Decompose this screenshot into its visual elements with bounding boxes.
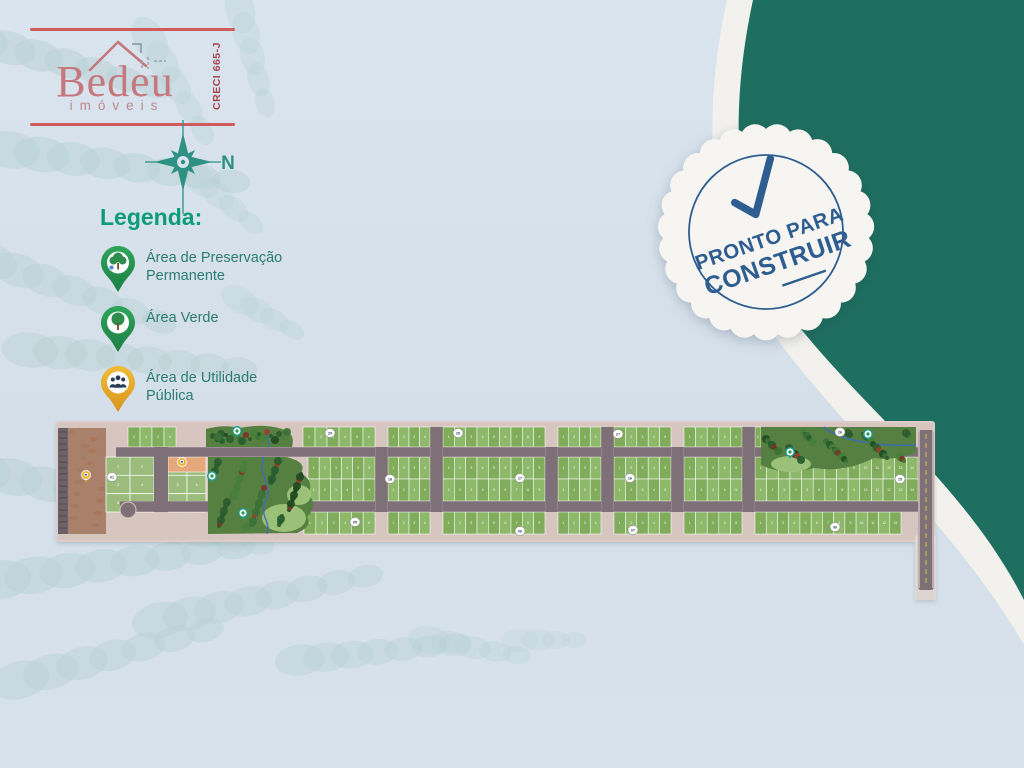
legend-label-line: Área Verde — [146, 309, 219, 327]
lot-number: 1 — [392, 521, 394, 525]
lot-number: 1 — [619, 466, 621, 470]
lot-number: 4 — [724, 488, 726, 492]
lot-number: 1 — [313, 466, 315, 470]
quadra-number: 17 — [518, 476, 522, 480]
tree — [248, 437, 252, 441]
lot-number: 2 — [630, 488, 632, 492]
lot-number: 2 — [324, 466, 326, 470]
lot-number: 2 — [573, 466, 575, 470]
lot-number: 5 — [664, 488, 666, 492]
lot-number: 9 — [538, 521, 540, 525]
lot-number: 5 — [356, 435, 358, 439]
lot-number: 3 — [470, 488, 472, 492]
lot-number: 7 — [830, 488, 832, 492]
lot-number: 3 — [783, 488, 785, 492]
chimney-line — [132, 44, 141, 53]
tree — [809, 438, 817, 446]
lot-number: 1 — [309, 521, 311, 525]
lot-number: 1 — [448, 521, 450, 525]
pin-people-dot — [181, 461, 183, 463]
quadra-number: 27 — [616, 432, 620, 436]
pin-tree-dot — [235, 429, 238, 432]
lot-number: 4 — [424, 488, 426, 492]
lot-number: 3 — [413, 435, 415, 439]
lot-number: 6 — [818, 488, 820, 492]
lot-number: 1 — [689, 466, 691, 470]
field-texture — [68, 430, 74, 434]
lot-number: 4 — [141, 483, 143, 487]
pin-tree-dot — [788, 450, 791, 453]
compass-north-label: N — [221, 153, 235, 174]
pin-tree-dot — [241, 511, 244, 514]
lot-number: 1 — [448, 488, 450, 492]
lot-number: 10 — [864, 466, 868, 470]
lot-number: 2 — [573, 521, 575, 525]
lot-number: 4 — [595, 488, 597, 492]
lot-number: 5 — [806, 488, 808, 492]
lot-number: 4 — [595, 466, 597, 470]
lot-number: 2 — [320, 435, 322, 439]
lot-number: 5 — [664, 435, 666, 439]
quadra-number: 16 — [628, 476, 632, 480]
tree — [281, 436, 285, 440]
compass-rose-icon: N — [126, 118, 250, 214]
lot-number: 2 — [321, 521, 323, 525]
tree — [242, 523, 250, 531]
tree — [269, 434, 273, 438]
quadra-number: 18 — [388, 477, 392, 481]
lot-number: 12 — [882, 521, 886, 525]
lot-number: 4 — [724, 435, 726, 439]
lot-number: 2 — [630, 466, 632, 470]
lot-number: 3 — [413, 488, 415, 492]
lot-number: 2 — [324, 488, 326, 492]
tree — [243, 432, 249, 438]
lot-number: 2 — [403, 435, 405, 439]
map-root: 1234561234561234123456123412345678912341… — [57, 422, 936, 600]
lot-number: 1 — [689, 521, 691, 525]
logo-card: Bedeu imóveis CRECI 665-J — [30, 30, 235, 122]
lot-number: 3 — [470, 466, 472, 470]
lot-number: 3 — [584, 466, 586, 470]
lot-number: 1 — [392, 488, 394, 492]
lot-number: 1 — [308, 435, 310, 439]
lot-number: 5 — [493, 466, 495, 470]
lot-number: 4 — [346, 466, 348, 470]
lot-number: 4 — [424, 466, 426, 470]
lot-number: 13 — [899, 466, 903, 470]
field-texture — [74, 480, 84, 484]
lot-number: 4 — [482, 435, 484, 439]
tree — [299, 472, 303, 476]
lot-number: 2 — [772, 488, 774, 492]
tree — [902, 459, 906, 463]
lot-number: 3 — [712, 466, 714, 470]
lot-number: 9 — [538, 488, 540, 492]
quadra-number: 28 — [456, 431, 460, 435]
field-texture — [71, 504, 79, 508]
tree — [276, 431, 282, 437]
quadra-number: 07 — [631, 528, 635, 532]
lot-number: 1 — [133, 435, 135, 439]
lot-number: 4 — [195, 483, 197, 487]
field-texture — [90, 437, 98, 441]
lot-number: 5 — [805, 521, 807, 525]
lot-number: 2 — [573, 435, 575, 439]
lot-number: 12 — [887, 466, 891, 470]
lot-number: 1 — [117, 465, 119, 469]
tree-trunk — [117, 323, 119, 330]
lot-number: 5 — [117, 501, 119, 505]
tree-canopy — [119, 257, 127, 265]
cross-street — [154, 447, 168, 512]
tree — [264, 429, 270, 435]
cross-street — [430, 427, 443, 512]
lot-number: 11 — [871, 521, 875, 525]
lot-number: 5 — [357, 488, 359, 492]
lot-number: 4 — [424, 435, 426, 439]
tree — [274, 457, 282, 465]
lot-number: 1 — [689, 435, 691, 439]
lot-number: 2 — [403, 466, 405, 470]
tree-trunk — [117, 263, 119, 270]
lot-number: 14 — [910, 466, 914, 470]
field-texture — [74, 492, 80, 496]
lot-number: 6 — [504, 466, 506, 470]
lot-number: 4 — [653, 488, 655, 492]
legend-label-line: Área de Preservação — [146, 249, 282, 267]
lot-number: 11 — [876, 466, 880, 470]
lot-number: 2 — [459, 466, 461, 470]
legend-label-line: Permanente — [146, 267, 282, 285]
lot-number: 3 — [584, 435, 586, 439]
lot-number: 1 — [760, 521, 762, 525]
tree — [261, 485, 267, 491]
lot-number: 9 — [538, 435, 540, 439]
lot-number: 13 — [894, 521, 898, 525]
lot-number: 6 — [369, 466, 371, 470]
legend-title: Legenda: — [100, 204, 320, 231]
lot-number: 6 — [369, 488, 371, 492]
lot-number: 1 — [689, 488, 691, 492]
lot-number: 3 — [413, 521, 415, 525]
lot-number: 4 — [482, 488, 484, 492]
lot-number: 4 — [346, 488, 348, 492]
lot-number: 1 — [448, 435, 450, 439]
lot-number: 3 — [333, 521, 335, 525]
quadra-number: 01 — [110, 475, 114, 479]
tree — [908, 435, 912, 439]
lot-number: 3 — [157, 435, 159, 439]
cross-street — [742, 427, 755, 512]
lot-number: 1 — [562, 466, 564, 470]
lot-number: 4 — [482, 521, 484, 525]
lot-number: 4 — [344, 435, 346, 439]
lot-number: 2 — [630, 521, 632, 525]
legend-item-label: Área de Preservação Permanente — [146, 249, 282, 285]
lot-number: 7 — [516, 488, 518, 492]
cross-street — [601, 427, 614, 512]
lot-number: 5 — [664, 466, 666, 470]
site-map: 1234561234561234123456123412345678912341… — [56, 420, 936, 600]
lot-number: 10 — [864, 488, 868, 492]
compass-center-dot — [181, 160, 185, 164]
lot-number: 3 — [335, 466, 337, 470]
lot-number: 9 — [538, 466, 540, 470]
lot-number: 6 — [816, 521, 818, 525]
field-texture — [93, 523, 99, 527]
legend-item-area-verde: Área Verde — [100, 305, 320, 353]
quadra-number: 08 — [833, 525, 837, 529]
lot-number: 1 — [562, 435, 564, 439]
lot-number: 13 — [899, 488, 903, 492]
tree — [250, 429, 258, 437]
lot-number: 3 — [413, 466, 415, 470]
field-texture — [96, 499, 104, 503]
lot-number: 2 — [403, 488, 405, 492]
quadra-number: 06 — [518, 529, 522, 533]
lot-number: 9 — [853, 466, 855, 470]
lot-number: 3 — [642, 466, 644, 470]
creci-label: CRECI 665-J — [211, 42, 223, 110]
lot-number: 2 — [403, 521, 405, 525]
lot-number: 5 — [735, 488, 737, 492]
cross-street — [545, 447, 558, 512]
lot-number: 1 — [619, 488, 621, 492]
lot-number: 2 — [459, 521, 461, 525]
pin-people-dot — [85, 474, 87, 476]
lot-number: 4 — [653, 435, 655, 439]
meadow — [771, 456, 811, 472]
field-texture — [80, 444, 90, 448]
lot-number: 1 — [757, 435, 759, 439]
quadra-number: 15 — [898, 477, 902, 481]
lot-number: 8 — [841, 488, 843, 492]
lot-number: 8 — [527, 488, 529, 492]
lot-number: 5 — [493, 488, 495, 492]
tree — [885, 456, 889, 460]
lot-number: 4 — [482, 466, 484, 470]
lot-number: 1 — [562, 521, 564, 525]
lot-number: 3 — [712, 521, 714, 525]
lot-number: 4 — [169, 435, 171, 439]
lot-number: 3 — [117, 483, 119, 487]
tree — [257, 432, 261, 436]
lot-number: 1 — [392, 435, 394, 439]
lot-number: 4 — [595, 435, 597, 439]
lot-number: 3 — [642, 435, 644, 439]
lot-number: 2 — [701, 521, 703, 525]
lot-number: 6 — [368, 521, 370, 525]
tree-canopy — [110, 257, 118, 265]
lot-number: 8 — [527, 521, 529, 525]
tree — [214, 433, 222, 441]
logo-accent-line-top — [30, 28, 235, 31]
lot-number: 12 — [887, 488, 891, 492]
lot-number: 5 — [735, 435, 737, 439]
utility-patch — [168, 457, 206, 472]
lot-number: 3 — [584, 521, 586, 525]
lot-number: 5 — [357, 466, 359, 470]
lot-number: 4 — [653, 521, 655, 525]
lot-number: 4 — [793, 521, 795, 525]
tree — [214, 458, 222, 466]
lot-number: 11 — [876, 488, 880, 492]
lot-number: 5 — [664, 521, 666, 525]
tree — [844, 459, 848, 463]
lot-number: 2 — [145, 435, 147, 439]
ready-badge: PRONTO PARA CONSTRUIR — [646, 112, 886, 352]
lot-number: 4 — [595, 521, 597, 525]
field-texture — [68, 516, 78, 520]
brand-subtitle: imóveis — [34, 98, 200, 113]
legend-label-line: Pública — [146, 387, 257, 405]
field-texture — [93, 511, 103, 515]
green-tree-pin-icon — [100, 305, 136, 353]
lot-number: 3 — [782, 521, 784, 525]
lot-number: 3 — [642, 488, 644, 492]
legend-label-line: Área de Utilidade — [146, 369, 257, 387]
legend-item-utilidade-publica: Área de Utilidade Pública — [100, 365, 320, 413]
lot-number: 4 — [795, 488, 797, 492]
lot-number: 7 — [516, 521, 518, 525]
lot-number: 3 — [335, 488, 337, 492]
lot-number: 4 — [345, 521, 347, 525]
lot-number: 8 — [527, 466, 529, 470]
quadra-number: 26 — [838, 430, 842, 434]
lot-number: 1 — [760, 466, 762, 470]
cross-street — [671, 447, 684, 512]
lot-number: 7 — [827, 521, 829, 525]
lot-number: 2 — [701, 488, 703, 492]
lot-number: 3 — [176, 483, 178, 487]
lot-number: 5 — [735, 466, 737, 470]
quadra-number: 05 — [353, 520, 357, 524]
tree — [224, 433, 228, 437]
lot-number: 3 — [642, 521, 644, 525]
field-texture — [87, 461, 93, 465]
lot-number: 4 — [724, 466, 726, 470]
lot-number: 1 — [392, 466, 394, 470]
tree — [223, 498, 231, 506]
tree — [797, 456, 805, 464]
lot-number: 10 — [860, 521, 864, 525]
compass-rose — [145, 120, 221, 214]
lot-number: 2 — [771, 521, 773, 525]
lot-number: 6 — [504, 521, 506, 525]
lot-number: 2 — [459, 488, 461, 492]
tree — [847, 432, 853, 438]
lot-number: 6 — [368, 435, 370, 439]
lot-number: 9 — [853, 488, 855, 492]
lot-number: 2 — [701, 466, 703, 470]
tree — [242, 460, 248, 466]
lot-number: 1 — [313, 488, 315, 492]
legend-item-label: Área Verde — [146, 309, 219, 327]
lot-number: 8 — [527, 435, 529, 439]
quadra-number: 29 — [328, 431, 332, 435]
lot-number: 1 — [619, 521, 621, 525]
lot-number: 2 — [141, 465, 143, 469]
lot-number: 2 — [701, 435, 703, 439]
lot-number: 4 — [724, 521, 726, 525]
lot-number: 6 — [504, 488, 506, 492]
lot-number: 1 — [562, 488, 564, 492]
field-texture — [87, 449, 97, 453]
legend-item-label: Área de Utilidade Pública — [146, 369, 257, 405]
turnaround — [120, 502, 136, 518]
lot-number: 3 — [712, 488, 714, 492]
lot-number: 7 — [516, 466, 518, 470]
lot-number: 3 — [584, 488, 586, 492]
lot-number: 2 — [630, 435, 632, 439]
yellow-people-pin-icon — [100, 365, 136, 413]
watermark-frond — [561, 632, 586, 648]
lot-number: 1 — [448, 466, 450, 470]
green-tree-water-pin-icon — [100, 245, 136, 293]
legend-item-preservacao: Área de Preservação Permanente — [100, 245, 320, 293]
tree — [283, 428, 291, 436]
lot-number: 5 — [493, 521, 495, 525]
lot-number: 4 — [424, 521, 426, 525]
lot-number: 4 — [653, 466, 655, 470]
lot-number: 9 — [850, 521, 852, 525]
water-drop — [110, 266, 114, 270]
pin-tree-dot — [866, 432, 869, 435]
lot-number: 14 — [910, 488, 914, 492]
lot-number: 5 — [735, 521, 737, 525]
lot-number: 3 — [470, 521, 472, 525]
field-texture — [99, 487, 105, 491]
lot-number: 7 — [516, 435, 518, 439]
lot-number: 5 — [493, 435, 495, 439]
lot-number: 6 — [504, 435, 506, 439]
page: { "logo": { "brand": "Bedeu", "subtitle"… — [0, 0, 1024, 768]
lot-number: 2 — [573, 488, 575, 492]
legend: Legenda: Área de Preservação Permanente … — [100, 204, 320, 425]
pin-tree-dot — [210, 474, 213, 477]
field-texture — [80, 456, 86, 460]
tree — [280, 514, 284, 518]
lot-number: 3 — [712, 435, 714, 439]
lot-number: 3 — [470, 435, 472, 439]
pin-inner — [107, 372, 129, 394]
lot-number: 1 — [760, 488, 762, 492]
tree — [774, 447, 782, 455]
